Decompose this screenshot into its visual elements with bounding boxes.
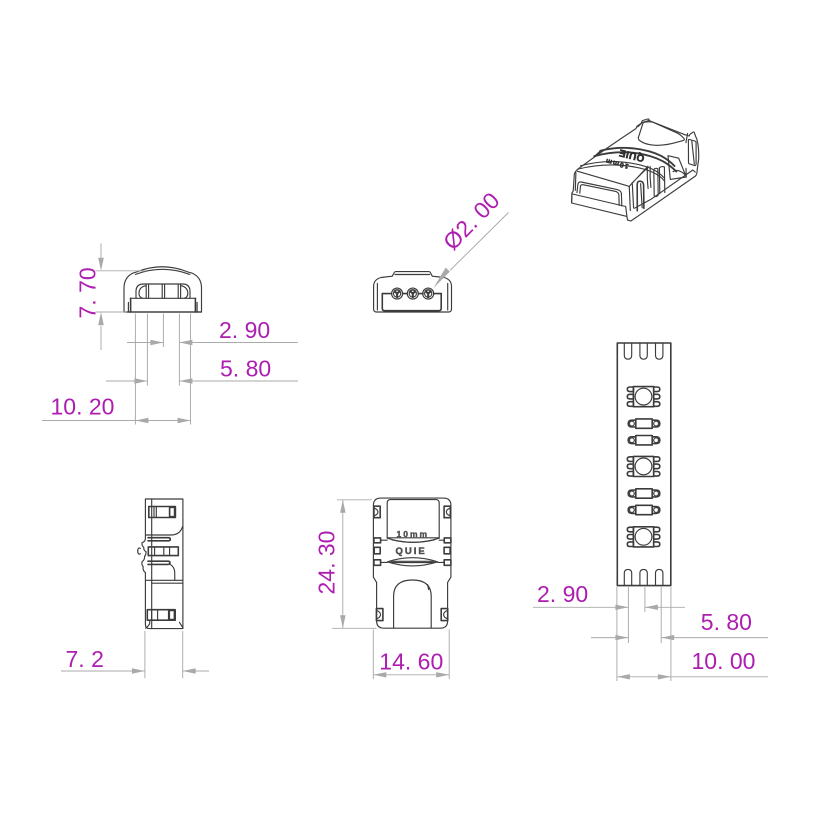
svg-text:7. 2: 7. 2: [66, 646, 104, 672]
svg-text:14. 60: 14. 60: [379, 648, 443, 674]
svg-text:10. 20: 10. 20: [51, 394, 115, 420]
svg-text:5. 80: 5. 80: [701, 609, 752, 635]
svg-text:10. 00: 10. 00: [692, 648, 756, 674]
svg-text:2. 90: 2. 90: [219, 317, 270, 343]
svg-text:QUIE: QUIE: [396, 546, 427, 557]
svg-text:2. 90: 2. 90: [537, 581, 588, 607]
svg-text:Ø2. 00: Ø2. 00: [438, 187, 505, 255]
svg-text:10mm: 10mm: [397, 529, 430, 539]
svg-text:7. 70: 7. 70: [75, 267, 101, 318]
svg-text:5. 80: 5. 80: [220, 356, 271, 382]
svg-text:24. 30: 24. 30: [314, 531, 340, 595]
